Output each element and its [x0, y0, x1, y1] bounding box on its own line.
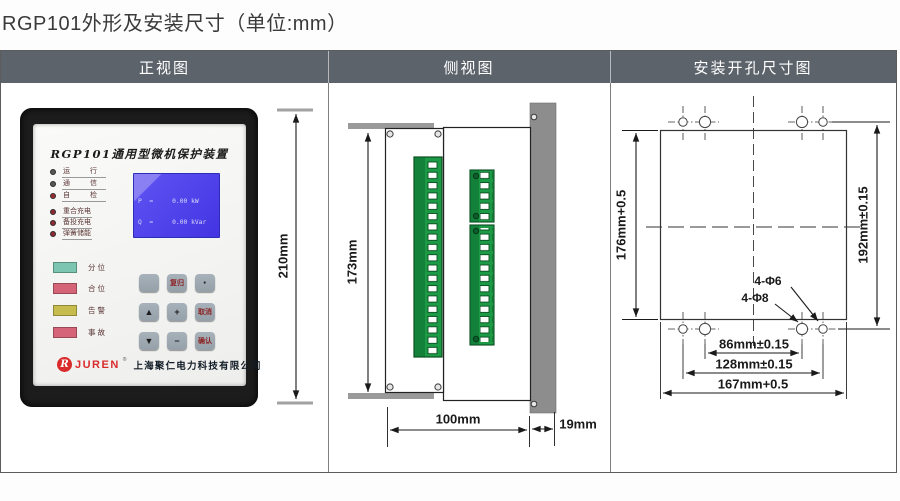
lcd-screen: P = 0.00 kW Q = 0.00 kVar PhI= 0.00 kWh … — [133, 173, 220, 238]
led-run-label: 运 行 — [62, 166, 106, 178]
juren-logo-icon: R — [57, 357, 72, 372]
device-keypad: 复归 · ▲ + 取消 ▼ − 确认 — [139, 274, 215, 350]
led-selfcheck-dot — [50, 193, 56, 199]
key-minus: − — [167, 332, 187, 350]
status-closed-label: 合位 — [88, 283, 107, 294]
dim-hole-span-vertical: 192mm±0.15 — [856, 186, 871, 263]
key-plus: + — [167, 303, 187, 321]
device-model-title: RGP101通用型微机保护装置 — [33, 146, 246, 162]
dim-hole-span-128: 128mm±0.15 — [715, 357, 792, 372]
led-comm-dot — [50, 181, 56, 187]
header-divider — [328, 51, 329, 83]
dim-cutout-width: 167mm+0.5 — [718, 377, 788, 392]
key-up: ▲ — [139, 303, 159, 321]
key-reset: 复归 — [167, 274, 187, 292]
key-confirm: 确认 — [195, 332, 215, 350]
header-side-view: 侧视图 — [328, 51, 610, 83]
led-comm-label: 通 信 — [62, 178, 106, 190]
led-run-dot — [50, 169, 56, 175]
company-name: 上海聚仁电力科技有限公司 — [133, 358, 261, 372]
led-spring-storage-label: 弹簧储能 — [62, 228, 92, 240]
led-backup-charge: 备投充电 — [50, 219, 92, 227]
status-fault: 事故 — [53, 327, 107, 338]
led-comm: 通 信 — [50, 180, 106, 188]
status-open: 分位 — [53, 262, 107, 273]
header-front-view: 正视图 — [1, 51, 328, 83]
status-alarm: 告警 — [53, 305, 107, 316]
dim-side-width: 100mm — [436, 412, 481, 427]
lcd-line: P = 0.00 kW — [138, 198, 215, 205]
column-divider — [610, 83, 611, 472]
device-front-view: RGP101通用型微机保护装置 运 行 通 信 自 检 重合充电 备投充电 — [20, 108, 258, 407]
key-cancel: 取消 — [195, 303, 215, 321]
status-closed-chip — [53, 283, 77, 294]
dim-side-height: 173mm — [345, 240, 360, 285]
led-reclose-charge-dot — [50, 209, 56, 215]
status-fault-chip — [53, 327, 77, 338]
diagram-stage: RGP101外形及安装尺寸（单位:mm） 正视图 侧视图 安装开孔尺寸图 — [0, 0, 900, 501]
led-run: 运 行 — [50, 168, 106, 176]
led-selfcheck: 自 检 — [50, 192, 106, 200]
led-spring-storage-dot — [50, 231, 56, 237]
status-open-chip — [53, 262, 77, 273]
lcd-line: Q = 0.00 kVar — [138, 219, 215, 226]
header-install-view-label: 安装开孔尺寸图 — [693, 57, 812, 78]
brand-row: R JUREN ® 上海聚仁电力科技有限公司 — [57, 356, 262, 373]
led-backup-charge-dot — [50, 220, 56, 226]
juren-logo-initial: R — [60, 359, 68, 370]
page-title: RGP101外形及安装尺寸（单位:mm） — [2, 7, 348, 36]
status-alarm-chip — [53, 305, 77, 316]
column-divider — [328, 83, 329, 472]
device-faceplate: RGP101通用型微机保护装置 运 行 通 信 自 检 重合充电 备投充电 — [33, 124, 246, 386]
status-open-label: 分位 — [88, 262, 107, 273]
juren-logo-text: JUREN — [75, 359, 120, 371]
label-hole-phi8: 4-Φ8 — [741, 291, 768, 305]
key-dot: · — [195, 274, 215, 292]
led-reclose-charge: 重合充电 — [50, 208, 92, 216]
header-install-view: 安装开孔尺寸图 — [610, 51, 896, 83]
led-spring-storage: 弹簧储能 — [50, 230, 92, 238]
dim-cutout-height: 176mm+0.5 — [614, 190, 629, 260]
header-front-view-label: 正视图 — [139, 57, 190, 78]
status-fault-label: 事故 — [88, 327, 107, 338]
dim-side-depth: 19mm — [559, 417, 597, 432]
header-side-view-label: 侧视图 — [443, 57, 494, 78]
led-selfcheck-label: 自 检 — [62, 190, 106, 202]
status-closed: 合位 — [53, 283, 107, 294]
label-hole-phi6: 4-Φ6 — [754, 274, 781, 288]
status-alarm-label: 告警 — [88, 305, 107, 316]
header-divider — [610, 51, 611, 83]
registered-mark: ® — [123, 357, 127, 363]
dim-hole-span-86: 86mm±0.15 — [719, 337, 789, 352]
dim-front-height: 210mm — [276, 234, 291, 279]
key-blank — [139, 274, 159, 292]
key-down: ▼ — [139, 332, 159, 350]
